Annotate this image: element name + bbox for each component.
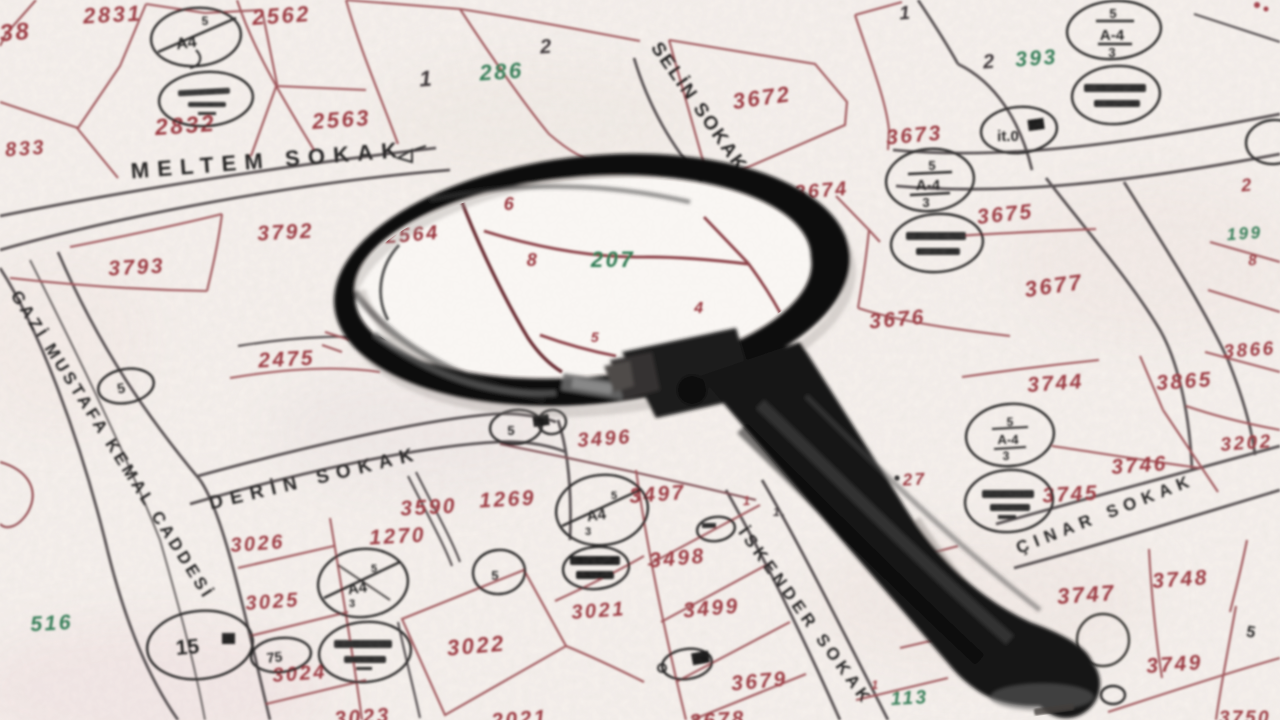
svg-text:8: 8 (527, 250, 540, 270)
svg-text:4: 4 (693, 300, 705, 317)
svg-text:5: 5 (591, 329, 601, 345)
svg-text:207: 207 (590, 247, 635, 272)
svg-text:6: 6 (504, 194, 517, 214)
